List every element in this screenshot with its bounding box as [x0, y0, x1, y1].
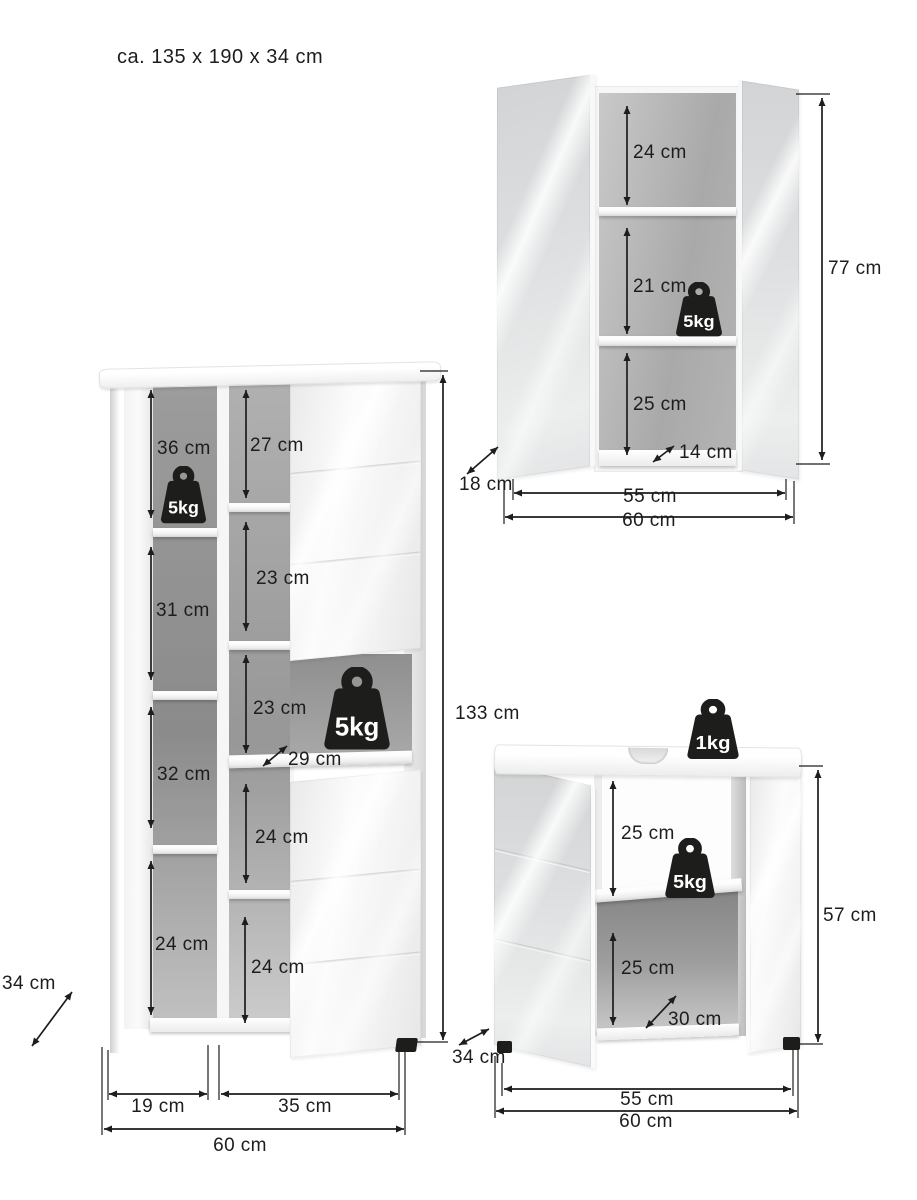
tall-cabinet-foot — [395, 1038, 418, 1052]
dim-label-tall-mid-2: 23 cm — [256, 569, 310, 589]
dim-label-tall-left-1: 36 cm — [157, 439, 211, 459]
mirror-cabinet-left-door — [497, 74, 595, 480]
dim-label-tall-left-2: 31 cm — [156, 601, 210, 621]
door-groove — [495, 938, 590, 963]
dim-label-sink-width: 60 cm — [596, 1112, 696, 1132]
weight-capacity-label: 5kg — [335, 714, 380, 742]
dim-label-tall-right-width: 35 cm — [250, 1097, 360, 1117]
tall-cabinet-left-door-edge — [110, 377, 124, 1053]
dim-label-mirror-inner-width: 55 cm — [600, 487, 700, 507]
dim-label-mirror-door-depth: 18 cm — [459, 475, 513, 495]
dim-label-sink-inner-depth: 30 cm — [668, 1010, 722, 1030]
furniture-dimensions-diagram: ca. 135 x 190 x 34 cm — [0, 0, 917, 1200]
sink-cabinet-right-door — [747, 770, 801, 1054]
shelf — [153, 691, 217, 700]
door-groove — [291, 869, 420, 884]
door-groove — [291, 952, 420, 967]
weight-icon: 5kg — [662, 838, 718, 902]
dim-label-sink-compartment-2: 25 cm — [621, 959, 675, 979]
dim-label-mirror-compartment-3: 25 cm — [633, 395, 687, 415]
dim-label-sink-inner-width: 55 cm — [597, 1090, 697, 1110]
dim-label-tall-mid-5: 24 cm — [251, 958, 305, 978]
dim-label-mirror-height: 77 cm — [828, 259, 882, 279]
dim-label-tall-mid-1: 27 cm — [250, 436, 304, 456]
shelf — [153, 845, 217, 854]
weight-icon: 5kg — [320, 667, 394, 755]
tall-cabinet-lower-door — [290, 769, 421, 1058]
dim-label-tall-mid-4: 24 cm — [255, 828, 309, 848]
shelf — [229, 890, 290, 899]
dim-label-tall-mid-3: 23 cm — [253, 699, 307, 719]
door-groove — [291, 460, 420, 475]
weight-capacity-label: 1kg — [696, 733, 731, 754]
dim-label-sink-height: 57 cm — [823, 906, 877, 926]
shelf — [599, 207, 736, 216]
dim-label-sink-compartment-1: 25 cm — [621, 824, 675, 844]
mirror-cabinet-right-door — [738, 80, 799, 480]
dim-label-tall-height: 133 cm — [455, 704, 520, 724]
tall-cabinet-floor — [150, 1018, 293, 1032]
dim-label-tall-left-4: 24 cm — [155, 935, 209, 955]
shelf — [229, 641, 290, 650]
dim-label-mirror-width: 60 cm — [599, 511, 699, 531]
dim-label-tall-width: 60 cm — [170, 1136, 310, 1156]
door-groove — [495, 848, 590, 873]
dim-label-tall-left-width: 19 cm — [108, 1097, 208, 1117]
weight-icon: 1kg — [684, 699, 742, 763]
sink-cabinet-left-door — [494, 763, 595, 1068]
dim-label-mirror-inner-depth: 14 cm — [679, 443, 733, 463]
weight-icon: 5kg — [158, 466, 209, 527]
dim-label-sink-depth: 34 cm — [452, 1048, 506, 1068]
tall-cabinet-upper-door — [290, 371, 421, 661]
dim-label-tall-depth: 34 cm — [2, 974, 56, 994]
dim-label-mirror-compartment-1: 24 cm — [633, 143, 687, 163]
weight-capacity-label: 5kg — [683, 312, 714, 331]
dim-label-mirror-compartment-2: 21 cm — [633, 277, 687, 297]
overall-dimensions-title: ca. 135 x 190 x 34 cm — [117, 46, 323, 69]
dim-label-tall-left-3: 32 cm — [157, 765, 211, 785]
door-groove — [291, 552, 420, 567]
dim-label-tall-inner-depth: 29 cm — [288, 750, 342, 770]
weight-capacity-label: 5kg — [168, 497, 199, 517]
sink-cabinet-foot — [783, 1037, 800, 1050]
shelf — [229, 503, 290, 512]
weight-capacity-label: 5kg — [673, 872, 707, 892]
shelf — [153, 528, 217, 537]
tall-cabinet-left-wall — [124, 379, 153, 1029]
